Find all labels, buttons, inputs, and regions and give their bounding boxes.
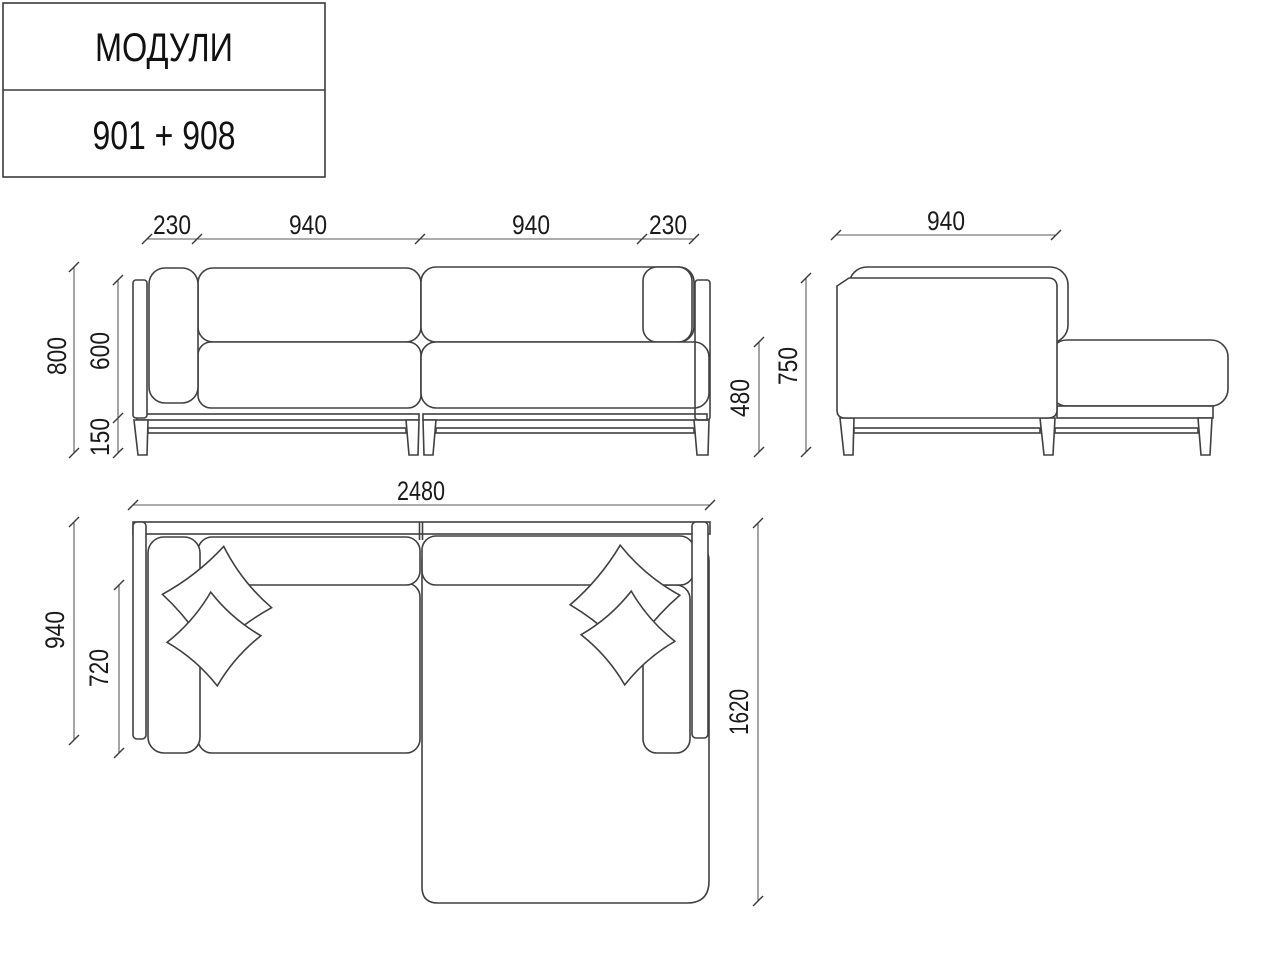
leg-side-right <box>1198 418 1212 455</box>
stretcher-side-right <box>1055 428 1198 433</box>
front-top-dimension: 230 940 940 230 <box>142 210 699 244</box>
dim-label-150: 150 <box>85 418 115 456</box>
dim-label-230-left: 230 <box>153 210 191 240</box>
front-dim-150: 150 <box>85 418 123 458</box>
title-block: МОДУЛИ 901 + 908 <box>3 3 325 177</box>
dim-label-1620: 1620 <box>724 689 754 735</box>
dim-label-800: 800 <box>42 337 72 375</box>
side-view: 940 750 <box>773 206 1228 457</box>
chaise-cushion-side <box>1050 340 1228 406</box>
dim-label-750: 750 <box>773 347 803 385</box>
arm-cushion-front-left <box>149 268 198 403</box>
title-block-code: 901 + 908 <box>93 114 236 158</box>
front-dim-480: 480 <box>725 337 764 457</box>
side-panel <box>837 278 1057 418</box>
arm-panel-front-left <box>133 280 147 418</box>
dim-label-side-940: 940 <box>927 206 965 236</box>
sofa-technical-drawing: МОДУЛИ 901 + 908 <box>0 0 1280 960</box>
plan-dim-1620: 1620 <box>724 518 763 906</box>
front-dim-800: 800 <box>42 262 79 458</box>
arm-panel-plan-left <box>133 522 146 739</box>
back-cushion-front-left <box>198 268 421 342</box>
leg-front-center-left <box>406 420 419 455</box>
seat-cushion-front-left <box>198 342 421 408</box>
side-dim-940: 940 <box>831 206 1061 240</box>
dim-label-940-right: 940 <box>512 210 550 240</box>
arm-panel-plan-right <box>692 522 708 738</box>
base-platform-side <box>1057 406 1213 418</box>
leg-front-center-right <box>423 420 436 455</box>
title-block-label: МОДУЛИ <box>95 26 233 70</box>
dim-label-600: 600 <box>85 332 115 370</box>
plan-dim-2480: 2480 <box>128 476 715 510</box>
dim-label-940-left: 940 <box>289 210 327 240</box>
stretcher-side-left <box>854 428 1040 433</box>
leg-front-right <box>694 420 709 455</box>
arm-cushion-front-right <box>643 267 692 342</box>
dim-label-480: 480 <box>725 379 755 417</box>
front-dim-600: 600 <box>85 275 123 423</box>
plan-dim-940: 940 <box>40 517 79 745</box>
side-dim-750: 750 <box>773 273 811 457</box>
dim-label-230-right: 230 <box>649 210 687 240</box>
stretcher-left <box>148 428 406 433</box>
leg-side-middle <box>1040 418 1055 455</box>
plan-view: 2480 940 720 1620 <box>40 476 763 906</box>
front-view: 230 940 940 230 800 600 150 <box>42 210 764 458</box>
dim-label-720: 720 <box>84 649 114 687</box>
dim-label-2480: 2480 <box>397 476 445 506</box>
stretcher-right <box>436 428 694 433</box>
drawing-sheet: МОДУЛИ 901 + 908 <box>0 0 1280 960</box>
plan-dim-720: 720 <box>84 580 124 758</box>
leg-side-left <box>840 418 854 455</box>
base-platform-left <box>137 414 419 420</box>
seat-cushion-front-right <box>421 342 709 408</box>
base-platform-right <box>423 414 707 420</box>
back-panel-plan <box>133 522 710 534</box>
dim-label-plan-940: 940 <box>40 611 70 649</box>
leg-front-left <box>134 420 148 455</box>
